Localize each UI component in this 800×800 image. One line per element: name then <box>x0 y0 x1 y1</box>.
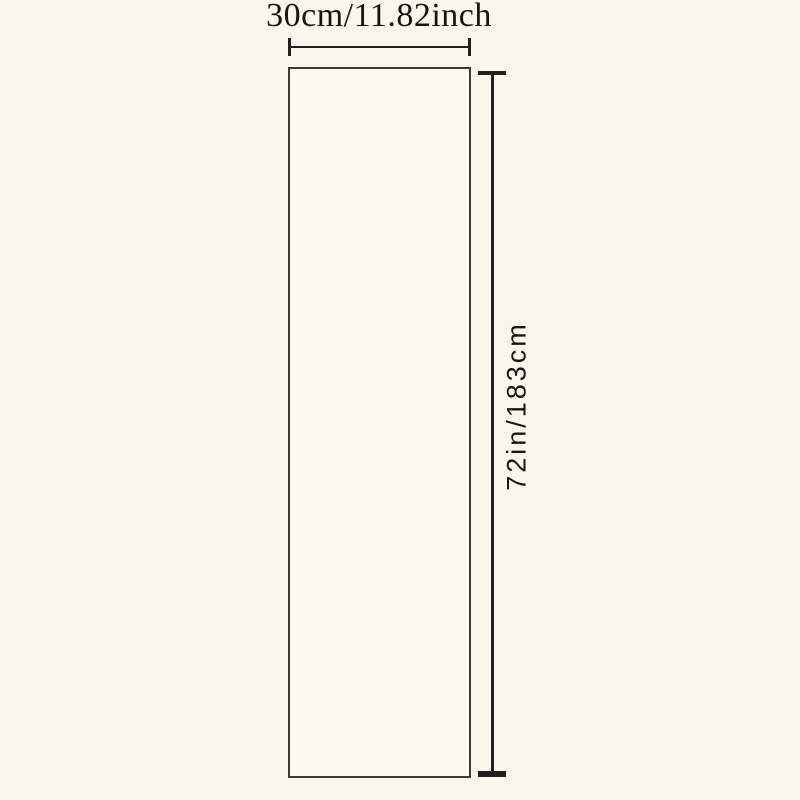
height-line-bottom-tick <box>478 771 506 777</box>
width-dimension-line <box>288 46 471 48</box>
dimension-diagram: 30cm/11.82inch 72in/183cm <box>0 0 800 800</box>
width-line-right-tick <box>468 38 471 56</box>
height-dimension-line <box>491 71 494 777</box>
width-line-left-tick <box>288 38 291 56</box>
height-line-top-tick <box>478 71 506 75</box>
width-dimension-label: 30cm/11.82inch <box>266 0 492 35</box>
product-outline-rectangle <box>288 67 471 778</box>
height-dimension-label: 72in/183cm <box>502 321 533 491</box>
